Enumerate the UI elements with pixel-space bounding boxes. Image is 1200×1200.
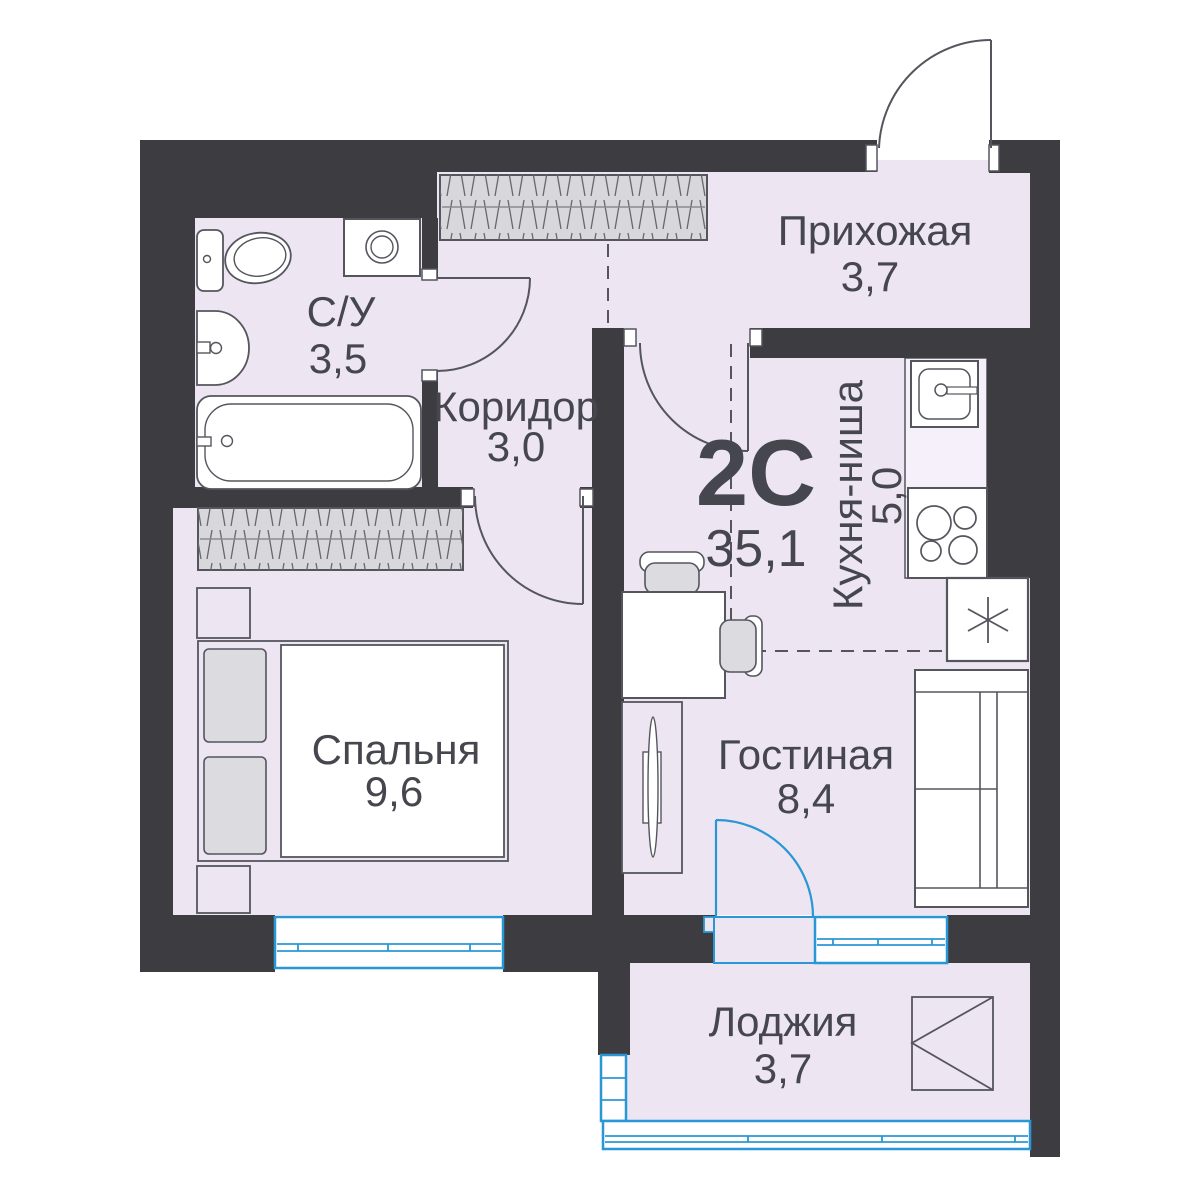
room-area-corridor: 3,0 xyxy=(487,423,545,470)
jamb-bathroom-bottom xyxy=(422,370,437,381)
wall-top-left-block xyxy=(140,140,437,218)
wall-hallway-bottom xyxy=(750,328,1030,358)
room-area-kitchen-niche: 5,0 xyxy=(863,467,910,525)
room-label-bathroom: С/У xyxy=(307,288,376,335)
fridge-icon xyxy=(947,578,1028,661)
wall-left-upper xyxy=(140,218,195,490)
window-bedroom xyxy=(275,917,503,968)
bathtub-icon xyxy=(197,396,421,489)
wardrobe-bedroom xyxy=(198,508,463,570)
tv-icon xyxy=(648,717,658,857)
apartment-type-label: 2С xyxy=(696,420,816,525)
floorplan-svg: Прихожая 3,7 С/У 3,5 Коридор 3,0 2С 35,1… xyxy=(0,0,1200,1200)
apartment-total-area: 35,1 xyxy=(705,520,806,578)
room-label-living: Гостиная xyxy=(718,731,894,778)
door-entry xyxy=(879,40,991,148)
room-area-living: 8,4 xyxy=(777,775,835,822)
room-area-bathroom: 3,5 xyxy=(309,335,367,382)
desk-chair-top-icon xyxy=(640,552,704,594)
wall-bedroom-top-left xyxy=(173,487,473,508)
wall-bottom-living-right xyxy=(947,915,1030,963)
room-area-bedroom: 9,6 xyxy=(365,768,423,815)
window-living xyxy=(815,917,947,963)
room-area-loggia: 3,7 xyxy=(754,1045,812,1092)
room-area-hallway: 3,7 xyxy=(841,253,899,300)
jamb-bedroom-left xyxy=(461,489,474,506)
wall-kitchen-shaft xyxy=(987,328,1030,578)
pillow-top xyxy=(204,649,266,742)
desk xyxy=(622,592,725,698)
jamb-bedroom-right xyxy=(580,489,593,506)
pillow-bottom xyxy=(204,757,266,854)
loggia-glazing-bottom xyxy=(603,1121,1030,1149)
wardrobe-entry xyxy=(440,175,707,240)
wall-bottom-bedroom-right xyxy=(503,915,630,972)
jamb-livingdoor-left xyxy=(624,329,636,346)
jamb-livingdoor-right xyxy=(750,329,762,346)
jamb-bathroom-top xyxy=(422,269,437,280)
room-label-bedroom: Спальня xyxy=(312,726,481,773)
nightstand-bottom xyxy=(197,866,250,913)
washing-machine-icon xyxy=(344,219,420,276)
wall-bottom-living-left xyxy=(630,915,716,963)
wall-top xyxy=(437,140,877,172)
stove-icon xyxy=(908,488,987,578)
floorplan-canvas: Прихожая 3,7 С/У 3,5 Коридор 3,0 2С 35,1… xyxy=(0,0,1200,1200)
desk-chair-right-icon xyxy=(720,616,762,676)
wall-left-lower xyxy=(140,490,173,972)
room-label-hallway: Прихожая xyxy=(778,207,973,254)
sofa-icon xyxy=(915,670,1028,907)
loggia-glazing-left xyxy=(601,1055,626,1121)
nightstand-top xyxy=(197,588,250,638)
wall-bottom-bedroom-left xyxy=(140,915,275,972)
wall-right xyxy=(1030,172,1060,1157)
tv-stand-icon xyxy=(622,702,682,873)
jamb-entry-right xyxy=(989,145,999,171)
wall-loggia-left-column xyxy=(598,972,630,1055)
kitchen-sink-icon xyxy=(911,361,978,427)
room-label-loggia: Лоджия xyxy=(709,998,858,1045)
jamb-entry-left xyxy=(866,145,877,171)
